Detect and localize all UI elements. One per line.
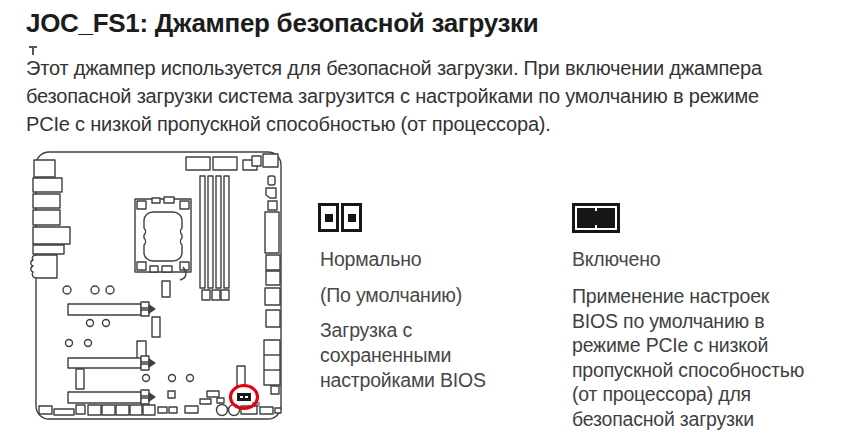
state-enabled-label: Включено — [572, 248, 660, 271]
jumper-cap — [577, 208, 615, 228]
state-normal-label: Нормально — [320, 248, 421, 271]
jumper-closed-icon — [572, 203, 620, 233]
jumper-pin-box — [341, 203, 362, 232]
jumper-pin — [348, 214, 356, 222]
state-enabled-description: Применение настроек BIOS по умолчанию в … — [572, 284, 804, 431]
top-headers — [186, 154, 278, 170]
state-normal-subtitle: (По умолчанию) — [320, 284, 462, 307]
cpu-socket — [135, 197, 191, 280]
jumper-open-icon — [318, 203, 362, 232]
motherboard-diagram-icon — [20, 144, 288, 434]
manual-page: JOC_FS1: Джампер безопасной загрузки Это… — [0, 0, 864, 443]
intro-paragraph: Этот джампер используется для безопасной… — [26, 54, 846, 138]
state-normal-description: Загрузка с сохраненными настройками BIOS — [320, 318, 486, 393]
scan-artifact — [29, 46, 37, 48]
page-title: JOC_FS1: Джампер безопасной загрузки — [26, 8, 538, 39]
jumper-pin — [325, 214, 333, 222]
jumper-pin-box — [318, 203, 339, 232]
